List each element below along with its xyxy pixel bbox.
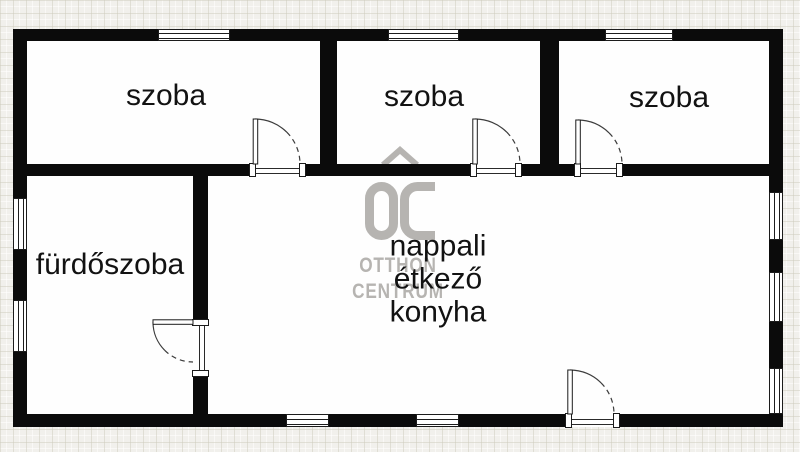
wall-divider-room1-room2: [320, 41, 337, 170]
window-top-2: [388, 29, 459, 41]
window-bottom-1: [286, 414, 329, 427]
door-jamb-icon: [249, 163, 256, 177]
living-room-label: nappaliétkezőkonyha: [390, 230, 487, 329]
door-jamb-icon: [515, 163, 522, 177]
window-right-2: [769, 272, 783, 322]
window-right-3: [769, 368, 783, 414]
floorplan-screenshot: { "labels": { "room1": "szoba", "room2":…: [0, 0, 800, 452]
window-glass-icon: [606, 33, 672, 39]
wall-bottom: [13, 414, 783, 427]
door-jamb-icon: [574, 163, 581, 177]
window-left-1: [13, 198, 27, 250]
living-label-line1: nappali: [390, 230, 487, 263]
door-threshold-entrance: [565, 414, 620, 427]
window-bottom-2: [416, 414, 459, 427]
window-glass-icon: [774, 193, 780, 239]
door-threshold-room3: [574, 164, 623, 176]
wall-bathroom: [193, 170, 208, 414]
door-jamb-icon: [192, 319, 209, 326]
window-right-1: [769, 192, 783, 240]
window-top-1: [158, 29, 230, 41]
room2-label: szoba: [384, 81, 464, 113]
window-glass-icon: [389, 33, 458, 39]
threshold-lines-icon: [199, 325, 205, 371]
room1-label: szoba: [126, 80, 206, 112]
door-threshold-room2: [470, 164, 522, 176]
living-label-line2: étkező: [394, 263, 482, 296]
window-glass-icon: [287, 419, 328, 425]
window-top-3: [605, 29, 673, 41]
threshold-lines-icon: [571, 419, 614, 425]
wall-divider-room2-room3: [540, 41, 559, 170]
door-jamb-icon: [192, 370, 209, 377]
window-glass-icon: [417, 419, 458, 425]
wall-interior-horizontal: [27, 164, 769, 176]
window-glass-icon: [159, 33, 229, 39]
threshold-lines-icon: [580, 168, 617, 174]
door-jamb-icon: [616, 163, 623, 177]
room3-label: szoba: [629, 82, 709, 114]
window-glass-icon: [774, 369, 780, 413]
window-glass-icon: [18, 301, 24, 351]
door-jamb-icon: [565, 413, 572, 428]
threshold-lines-icon: [255, 168, 300, 174]
living-label-line3: konyha: [390, 296, 487, 329]
door-jamb-icon: [470, 163, 477, 177]
window-left-2: [13, 300, 27, 352]
door-threshold-room1: [249, 164, 306, 176]
threshold-lines-icon: [476, 168, 516, 174]
door-threshold-bathroom: [193, 319, 208, 377]
window-glass-icon: [18, 199, 24, 249]
door-jamb-icon: [299, 163, 306, 177]
door-jamb-icon: [613, 413, 620, 428]
bathroom-label: fürdőszoba: [36, 249, 184, 281]
window-glass-icon: [774, 273, 780, 321]
